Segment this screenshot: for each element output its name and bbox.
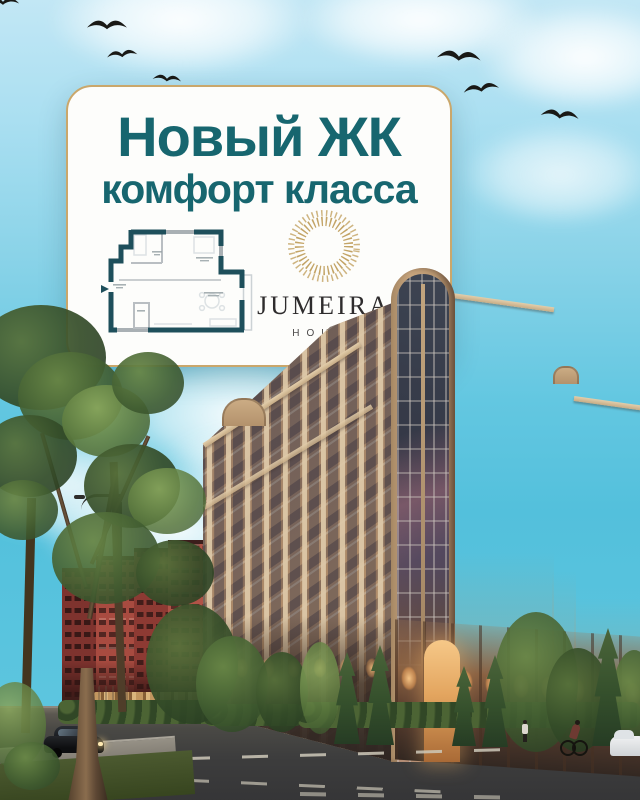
- bird-icon: [0, 0, 20, 8]
- pediment-arch: [553, 366, 579, 384]
- pediment-arch: [222, 398, 266, 426]
- floor-plan-balcony: [244, 275, 252, 330]
- cyclist: [560, 720, 590, 756]
- tree-foliage: [112, 352, 184, 414]
- floor-plan: [94, 213, 266, 361]
- white-car: [610, 736, 640, 756]
- poster: Новый ЖК комфорт класса: [0, 0, 640, 800]
- bird-icon: [152, 71, 183, 86]
- tree: [300, 642, 340, 734]
- headline-line2: комфорт класса: [68, 169, 450, 210]
- headline-line1: Новый ЖК: [68, 109, 450, 165]
- tree-foliage: [4, 742, 60, 790]
- headline: Новый ЖК комфорт класса: [68, 109, 450, 210]
- floor-plan-labels: [113, 251, 223, 312]
- sunburst-icon: [283, 205, 365, 287]
- street-lamp-head: [74, 495, 85, 499]
- bird-icon: [435, 44, 482, 66]
- entry-arrow-icon: [101, 285, 109, 293]
- bird-icon: [86, 16, 128, 33]
- pedestrian: [521, 720, 529, 742]
- tree-foliage: [136, 540, 214, 606]
